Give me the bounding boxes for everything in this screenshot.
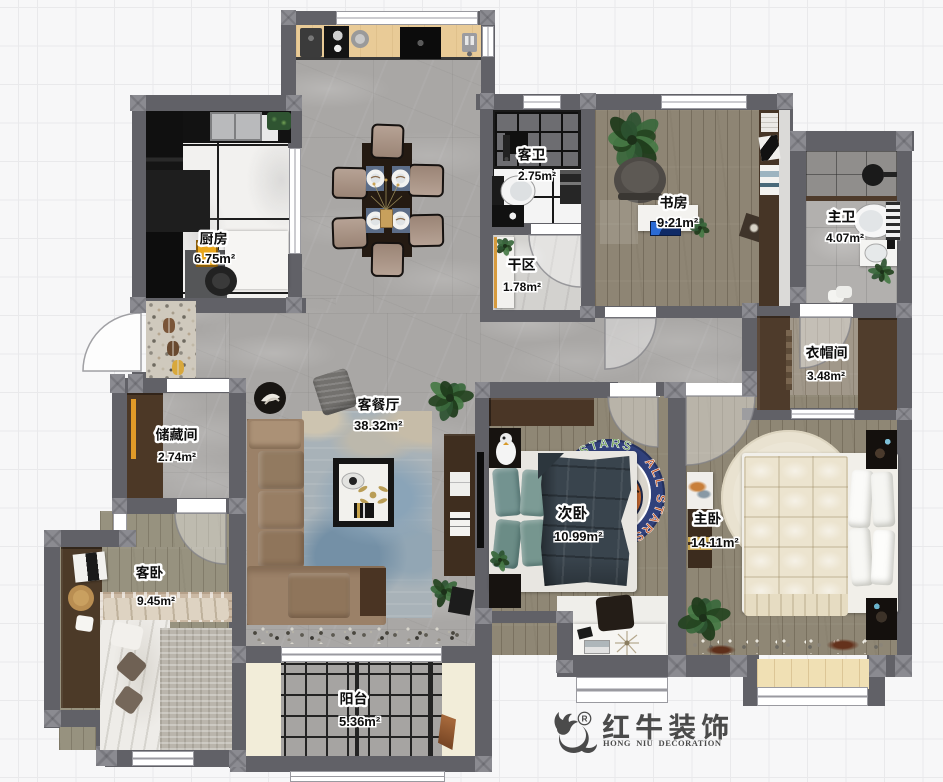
svg-text:R: R (581, 713, 587, 723)
